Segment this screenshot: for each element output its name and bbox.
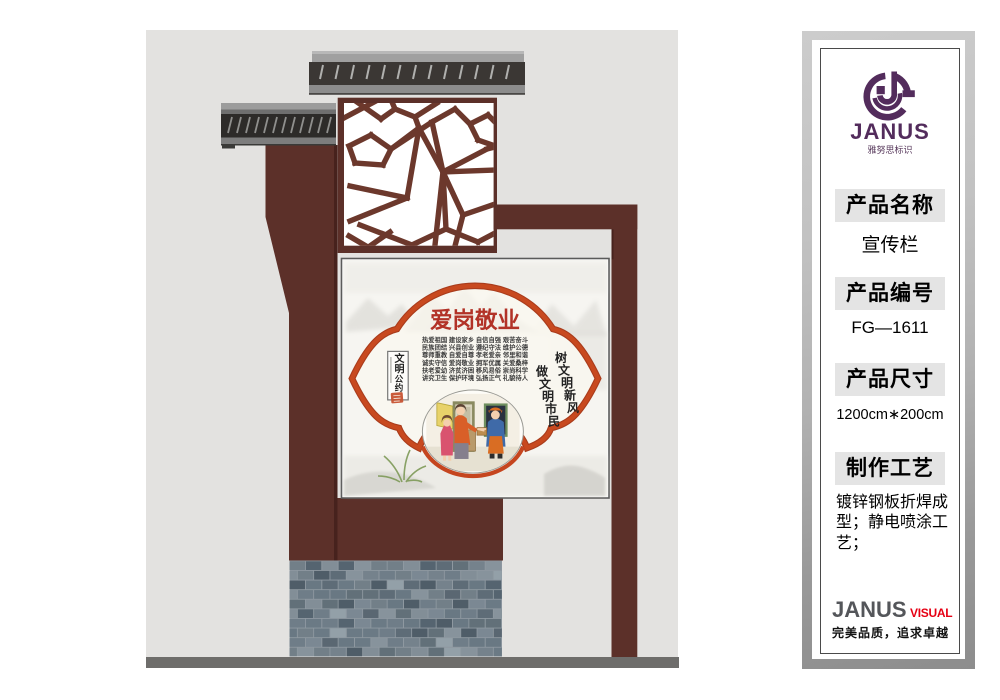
svg-text:民族团结 兴县创业 遵纪守法 维护公德: 民族团结 兴县创业 遵纪守法 维护公德 <box>422 343 529 352</box>
svg-text:文: 文 <box>395 352 406 365</box>
svg-text:民: 民 <box>548 415 560 429</box>
svg-text:风: 风 <box>567 401 579 415</box>
svg-text:尊师重教 自爱自尊 孝老爱亲 邻里和谐: 尊师重教 自爱自尊 孝老爱亲 邻里和谐 <box>422 350 529 359</box>
svg-text:讲究卫生 保护环境 弘扬正气 礼貌待人: 讲究卫生 保护环境 弘扬正气 礼貌待人 <box>422 373 529 382</box>
svg-text:诚实守信 爱岗敬业 拥军优属 关爱桑梓: 诚实守信 爱岗敬业 拥军优属 关爱桑梓 <box>422 358 529 367</box>
svg-text:扶老爱幼 济贫济困 移风易俗 崇尚科学: 扶老爱幼 济贫济困 移风易俗 崇尚科学 <box>422 365 529 374</box>
svg-text:爱岗敬业: 爱岗敬业 <box>430 308 520 333</box>
svg-text:热爱祖国 建设家乡 自信自强 艰苦奋斗: 热爱祖国 建设家乡 自信自强 艰苦奋斗 <box>422 335 529 344</box>
svg-text:约: 约 <box>395 383 404 393</box>
